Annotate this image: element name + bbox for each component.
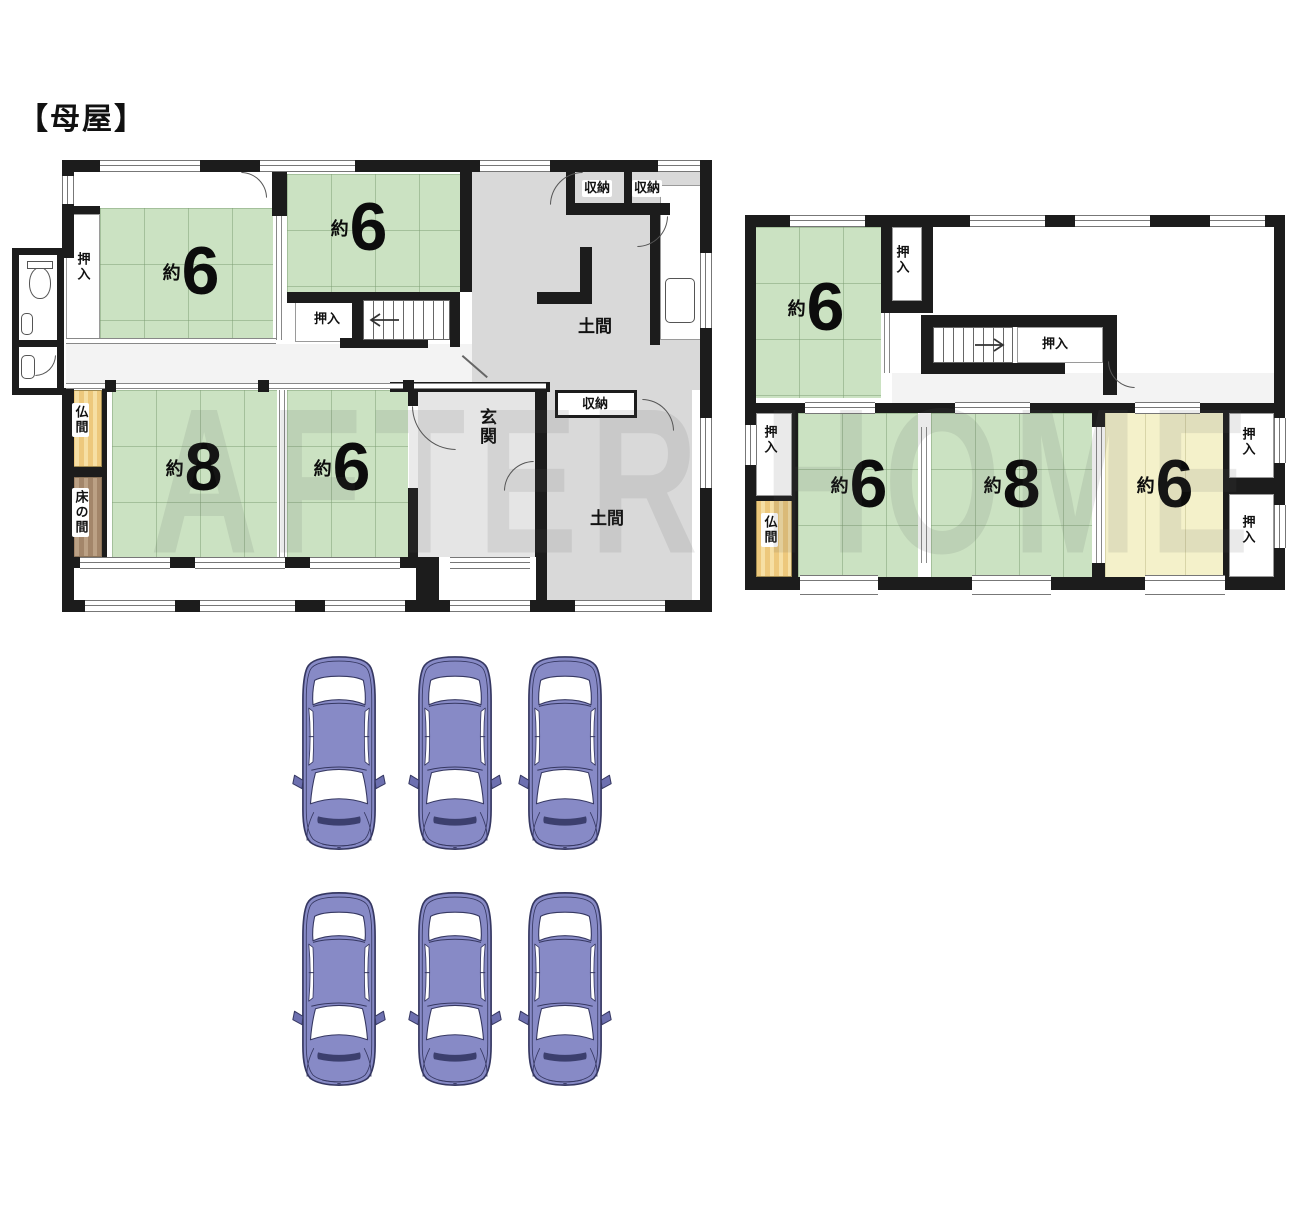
window-top-2 xyxy=(260,160,355,172)
annex-divider xyxy=(19,340,57,347)
label-storage-1: 収納 xyxy=(582,180,612,197)
sink-icon xyxy=(21,313,33,335)
window-top-1 xyxy=(100,160,200,172)
window-rooms-bottom-2 xyxy=(195,557,285,569)
window-rooms-bottom-3 xyxy=(310,557,400,569)
floor2-plan: 約6 押入 押入 押入 仏間 約6 約8 約6 押入 押入 xyxy=(745,213,1290,605)
label-storage-south: 収納 xyxy=(580,396,610,413)
label-oshiire-west: 押入 xyxy=(74,250,91,284)
window-bottom-2 xyxy=(200,600,295,612)
wall-doma-boundary xyxy=(460,172,472,292)
shoji-room8-room6se-2f xyxy=(1096,427,1102,563)
shoji-room-nw-2f xyxy=(884,313,890,373)
window-2f-balcony-2 xyxy=(972,575,1051,595)
basin-icon xyxy=(21,355,35,379)
car-top-view xyxy=(408,877,502,1101)
wall-room8-room6se xyxy=(1092,413,1105,427)
shoji-room-hall-south xyxy=(66,383,546,389)
window-right-porch xyxy=(700,253,712,328)
wall-oshiire-e-left xyxy=(1223,413,1229,577)
label-oshiire-sw-2f: 押入 xyxy=(761,423,778,457)
porch-sink-icon xyxy=(665,278,695,323)
stairs-arrow-icon xyxy=(367,312,401,328)
label-oshiire-mid-2f: 押入 xyxy=(1040,336,1070,353)
car-top-view xyxy=(518,877,612,1101)
car-top-view xyxy=(292,641,386,865)
toilet-icon xyxy=(29,267,51,299)
wall-room8-room6se-b xyxy=(1092,563,1105,577)
hallway-2f xyxy=(892,373,1275,403)
label-butsuma: 仏間 xyxy=(72,403,89,437)
wall-stairs-top-2f xyxy=(921,315,1103,327)
window-bottom-5 xyxy=(575,600,665,612)
window-top-4 xyxy=(658,160,700,172)
pier-b xyxy=(258,380,269,392)
room-size-label: 約8 xyxy=(166,439,221,497)
label-genkan: 玄関 xyxy=(476,406,497,448)
wall-oshiire-n-bottom xyxy=(881,301,933,313)
shoji-room-hall-north xyxy=(66,338,276,344)
wall-oshiire-e-divider xyxy=(1226,478,1274,494)
window-bottom-4 xyxy=(450,600,530,612)
window-2f-right-2 xyxy=(1274,505,1286,548)
label-doma-upper: 土間 xyxy=(576,316,614,337)
label-tokonoma: 床の間 xyxy=(72,488,89,537)
label-butsuma-2f: 仏間 xyxy=(761,513,778,547)
wall-oshiire-sw-right xyxy=(792,413,798,577)
wall-room-genkan-a xyxy=(408,390,418,406)
window-left-1 xyxy=(62,176,74,204)
car-top-view xyxy=(292,877,386,1101)
pier-a xyxy=(105,380,116,392)
label-oshiire-center: 押入 xyxy=(312,311,342,328)
window-2f-roomtop-3 xyxy=(1135,402,1200,414)
wall-stairs-right xyxy=(450,295,460,347)
shoji-room8-room6 xyxy=(279,390,285,557)
car-top-view xyxy=(408,641,502,865)
window-bottom-1 xyxy=(85,600,175,612)
wall-genkan-doma xyxy=(535,390,547,557)
window-right-doma xyxy=(700,418,712,488)
room-size-label: 約6 xyxy=(314,439,369,497)
wall-stairs-bottom-2f xyxy=(921,363,1065,374)
wall-veranda-doma xyxy=(536,557,547,600)
room-size-label: 約6 xyxy=(1137,456,1192,514)
stairs-first-floor xyxy=(363,300,450,340)
window-2f-roomtop-1 xyxy=(805,402,875,414)
page-title: 【母屋】 xyxy=(18,94,146,138)
room-size-label: 約6 xyxy=(331,199,386,257)
wall-doma-l-horizontal xyxy=(537,292,592,304)
stairs-arrow-icon xyxy=(973,337,1007,353)
room-size-label: 約6 xyxy=(831,456,886,514)
shoji-room-divider xyxy=(276,216,282,340)
wall-oshiire-top xyxy=(62,206,100,214)
wall-room-genkan-b xyxy=(408,488,418,557)
window-2f-roomtop-2 xyxy=(955,402,1030,414)
door-arc-north xyxy=(241,172,267,198)
label-doma-lower: 土間 xyxy=(588,508,626,529)
window-top-3 xyxy=(480,160,550,172)
wall-veranda-pier xyxy=(416,557,439,600)
room-size-label: 約6 xyxy=(788,279,843,337)
wall-butsuma-divider-2f xyxy=(756,496,792,501)
window-bottom-3 xyxy=(325,600,405,612)
room-size-label: 約8 xyxy=(984,456,1039,514)
label-oshiire-e2-2f: 押入 xyxy=(1239,513,1256,547)
wall-alcove-divider xyxy=(70,467,102,477)
pier-c xyxy=(403,380,414,392)
floor1-plan: 押入 約6 約6 押入 収納 収納 土間 仏間 床の間 約8 約6 玄関 収納 … xyxy=(10,158,716,620)
stairs-second-floor xyxy=(933,327,1013,363)
wall-hall-stub-2f xyxy=(1103,315,1117,395)
window-rooms-bottom-1 xyxy=(80,557,170,569)
label-oshiire-e1-2f: 押入 xyxy=(1239,425,1256,459)
window-2f-balcony-3 xyxy=(1145,575,1225,595)
wall-stairs-left xyxy=(352,295,363,344)
door-arc-annex xyxy=(35,355,56,376)
window-2f-top-4 xyxy=(1210,215,1265,227)
wall-right xyxy=(700,160,712,612)
car-top-view xyxy=(518,641,612,865)
room-size-label: 約6 xyxy=(163,243,218,301)
window-2f-top-2 xyxy=(970,215,1045,227)
window-2f-top-3 xyxy=(1075,215,1150,227)
label-storage-2: 収納 xyxy=(632,180,662,197)
wall-alcove-right xyxy=(102,386,107,557)
label-oshiire-north-2f: 押入 xyxy=(893,243,910,277)
toilet-annex xyxy=(12,248,64,395)
window-2f-right-1 xyxy=(1274,418,1286,463)
hallway xyxy=(66,344,472,384)
floorplan-page: 【母屋】 AFTER HOME xyxy=(0,0,1300,1228)
window-2f-balcony-1 xyxy=(800,575,878,595)
window-2f-left xyxy=(745,425,757,465)
window-2f-top-1 xyxy=(790,215,865,227)
window-porch-row xyxy=(450,557,530,569)
shoji-room6-room8-2f xyxy=(921,427,927,563)
toilet-tank xyxy=(27,261,53,269)
